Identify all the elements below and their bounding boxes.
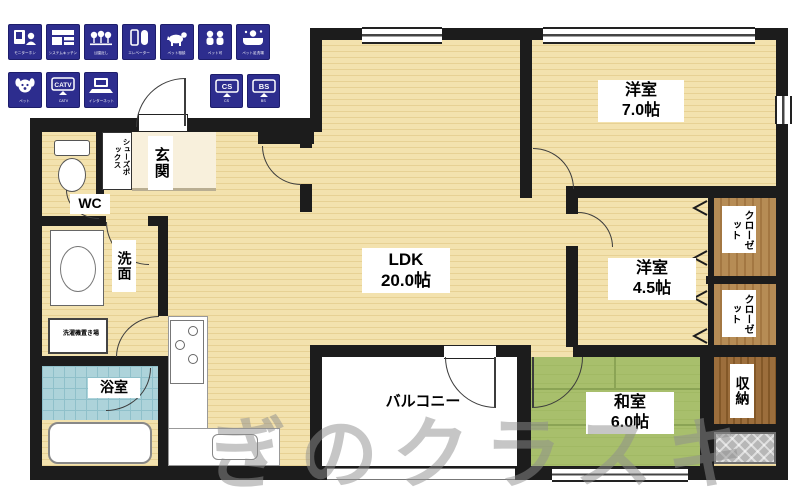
burner-icon [188, 326, 198, 336]
stove [170, 320, 204, 384]
internet-laptop-icon [88, 76, 114, 96]
room-label-western45: 洋室 4.5帖 [608, 258, 696, 300]
room-label-laundry: 洗濯機置き場 [51, 330, 111, 340]
amenity-caption: CS [224, 100, 229, 104]
bs-screen-text: BS [258, 82, 268, 91]
entrance-door-leaf [184, 78, 186, 126]
wall [520, 186, 532, 198]
western7-area: 7.0帖 [601, 101, 681, 121]
amenity-badge: CATV CATV [46, 72, 80, 108]
amenity-caption: 公園近し [94, 52, 108, 56]
amenity-badge: BS BS [247, 74, 280, 108]
wall [310, 345, 444, 357]
amenity-badge: ペット足洗場 [236, 24, 270, 60]
room-label-wc: WC [70, 194, 110, 214]
wall [566, 186, 788, 198]
cs-screen-text: CS [221, 82, 231, 91]
wall [30, 118, 42, 480]
floor-plan-page: LDK 20.0帖 洋室 7.0帖 洋室 4.5帖 和室 6.0帖 バルコニー … [0, 0, 800, 492]
burner-icon [175, 340, 185, 350]
amenity-caption: モニターホン [14, 52, 36, 56]
folding-door-icon [692, 200, 708, 216]
amenity-caption: インターネット [88, 100, 113, 104]
window [362, 27, 442, 44]
catv-screen-text: CATV [54, 82, 72, 89]
amenity-caption: エレベーター [128, 52, 150, 56]
burner-icon [188, 354, 198, 364]
system-kitchen-icon [50, 28, 76, 48]
wall [300, 132, 312, 148]
amenity-caption: ペット相談 [168, 52, 186, 56]
entrance-step [132, 188, 216, 191]
western7-name: 洋室 [601, 81, 681, 101]
ldk-name: LDK [365, 249, 447, 270]
wall [310, 28, 322, 132]
amenity-badge: ペット [8, 72, 42, 108]
wall [158, 356, 168, 466]
pets-ok-icon [202, 28, 228, 48]
wall [708, 282, 714, 346]
amenity-badge: ペット相談 [160, 24, 194, 60]
pet-wash-icon [240, 28, 266, 48]
amenity-badge: ペット可 [198, 24, 232, 60]
room-label-shoe-box: シューズボックス [104, 136, 132, 178]
amenity-caption: ペット足洗場 [242, 52, 264, 56]
washbasin-bowl [60, 246, 96, 292]
wall [706, 276, 788, 284]
room-label-closet-lower: クローゼット [722, 290, 756, 337]
toilet-tank [54, 140, 90, 156]
intercom-icon [12, 28, 38, 48]
amenity-caption: BS [261, 100, 266, 104]
amenity-caption: ペット可 [208, 52, 222, 56]
wall [300, 184, 312, 212]
window [775, 96, 792, 124]
amenity-badge: CS CS [210, 74, 243, 108]
entrance-floor [132, 132, 216, 190]
room-label-bath: 浴室 [88, 378, 140, 398]
amenity-badge: 公園近し [84, 24, 118, 60]
pet-consult-icon [164, 28, 190, 48]
toilet-bowl [58, 158, 86, 192]
park-trees-icon [88, 28, 114, 48]
bathtub [48, 422, 152, 464]
wall [520, 40, 532, 196]
wall [573, 345, 788, 357]
window [543, 27, 755, 44]
wall [30, 118, 138, 132]
amenity-caption: ペット [20, 100, 31, 104]
cs-icon: CS [214, 78, 240, 98]
room-label-ldk: LDK 20.0帖 [362, 248, 450, 293]
tatami-line [614, 357, 616, 390]
amenity-badge: システムキッチン [46, 24, 80, 60]
wall [708, 196, 714, 276]
amenity-badge: モニターホン [8, 24, 42, 60]
room-label-closet-upper: クローゼット [722, 206, 756, 253]
amenity-badge: エレベーター [122, 24, 156, 60]
western45-name: 洋室 [611, 259, 693, 279]
amenity-caption: CATV [58, 100, 67, 104]
elevator-icon [126, 28, 152, 48]
wall [158, 216, 168, 316]
wall [566, 198, 578, 214]
western45-area: 4.5帖 [611, 279, 693, 299]
wall [42, 356, 162, 366]
dog-face-icon [12, 76, 38, 96]
wall [566, 246, 578, 347]
ldk-area: 20.0帖 [365, 270, 447, 291]
bs-icon: BS [251, 78, 277, 98]
catv-icon: CATV [50, 76, 76, 96]
room-label-western7: 洋室 7.0帖 [598, 80, 684, 122]
room-label-entrance: 玄関 [148, 136, 173, 190]
room-label-washroom: 洗面 [112, 240, 136, 292]
amenity-caption: システムキッチン [49, 52, 78, 56]
folding-door-icon [692, 328, 708, 344]
watermark: ぎのクラスキ [208, 392, 758, 492]
amenity-badge: インターネット [84, 72, 118, 108]
